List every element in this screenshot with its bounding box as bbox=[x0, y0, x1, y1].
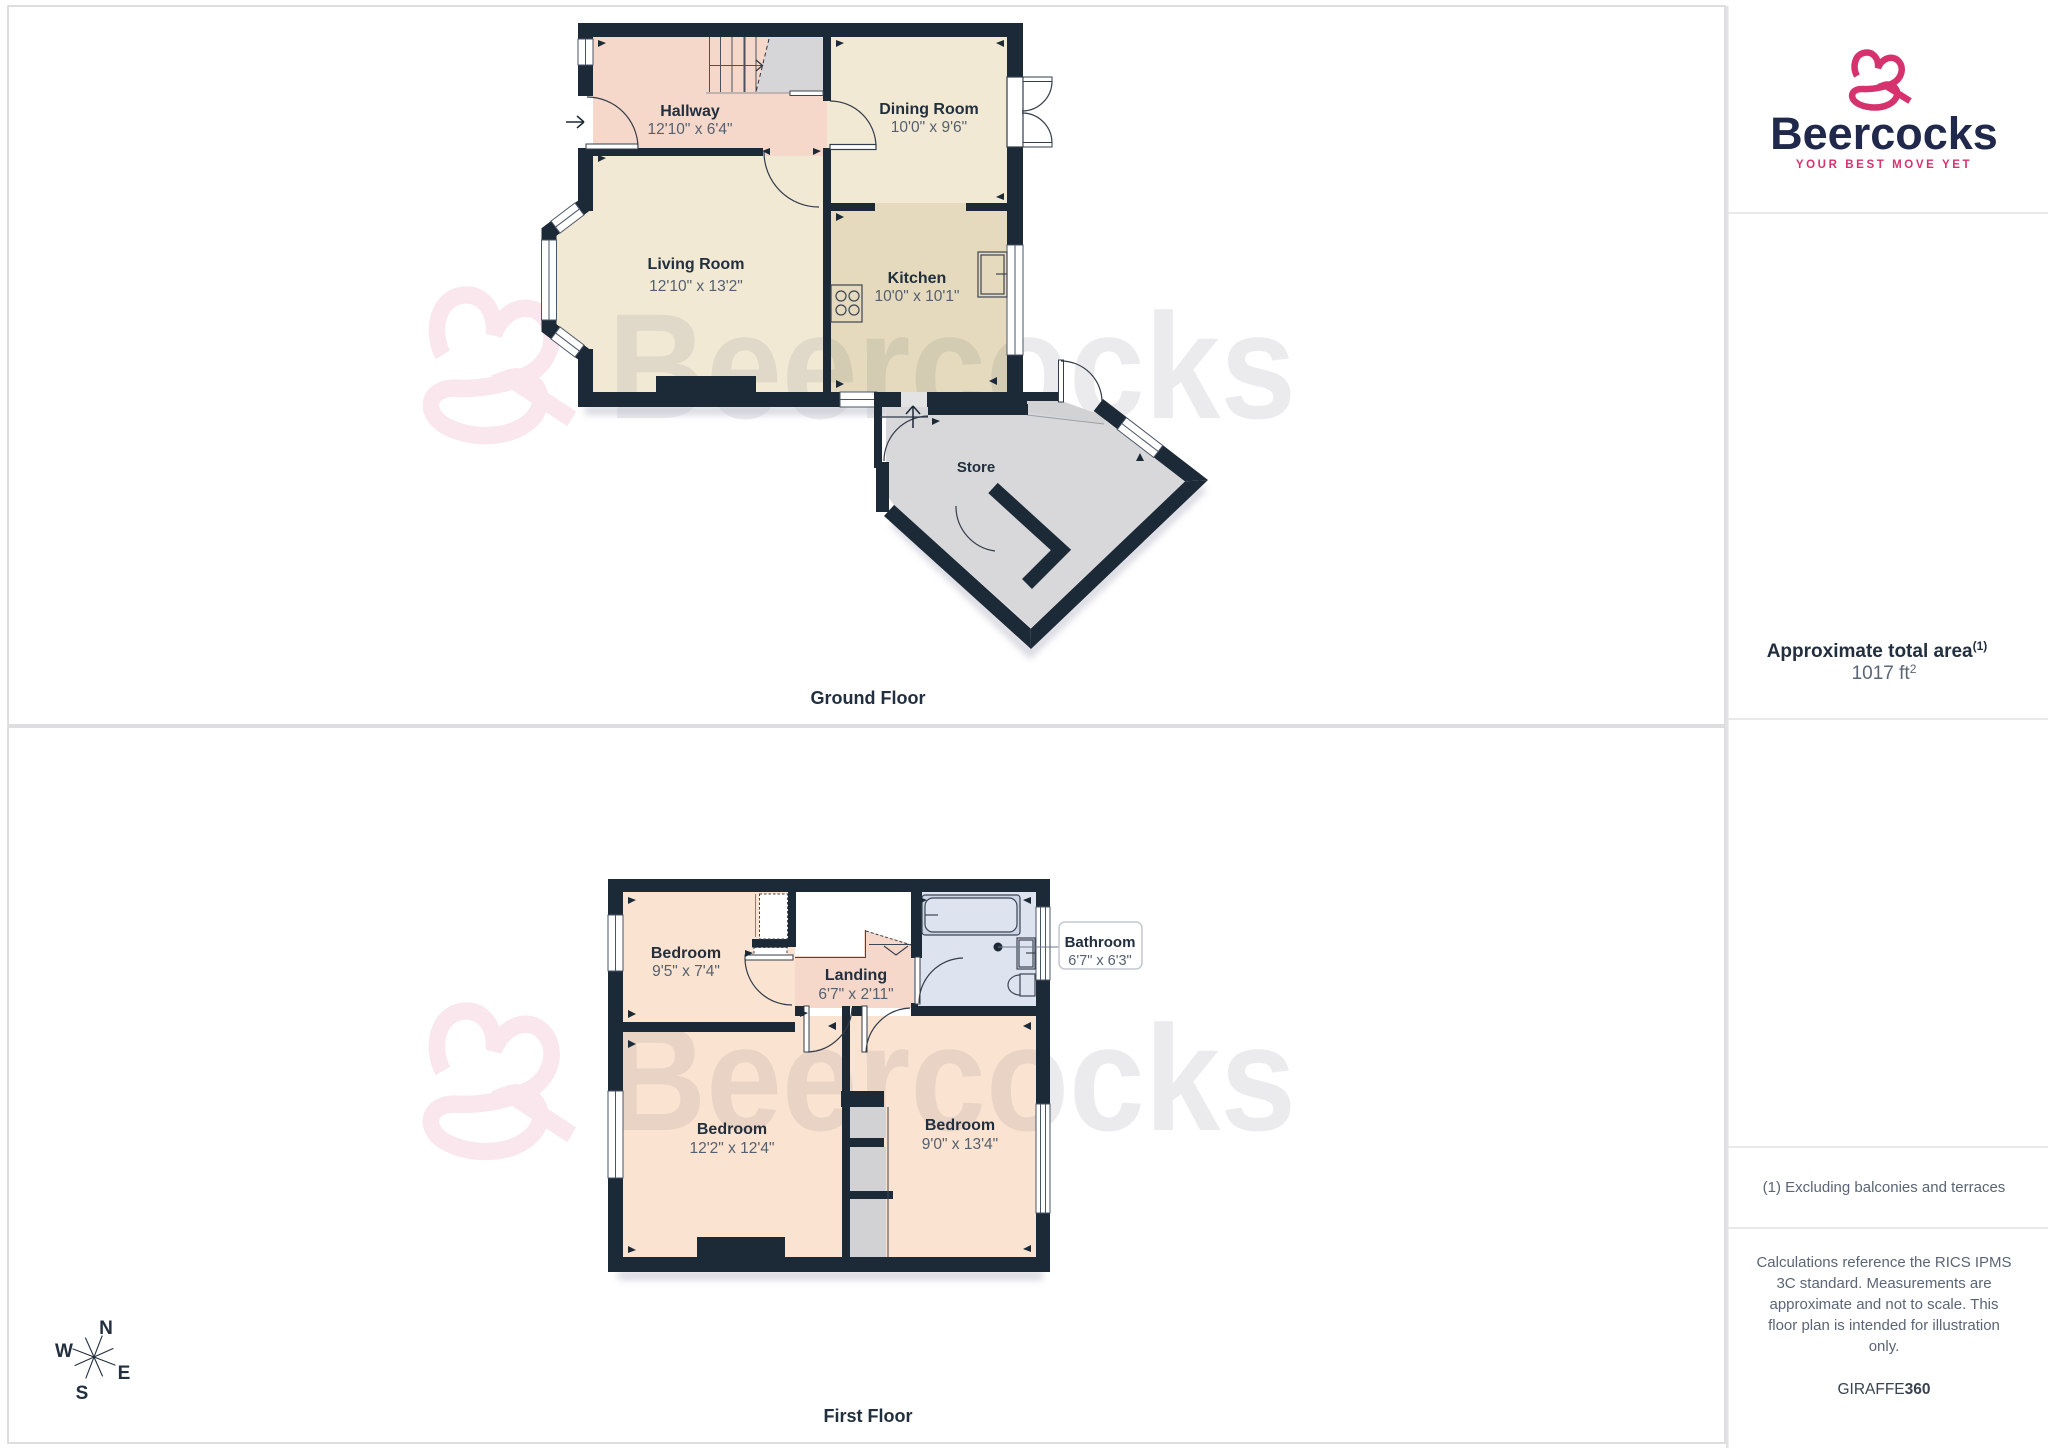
svg-text:S: S bbox=[76, 1383, 89, 1404]
svg-text:12'10" x 13'2": 12'10" x 13'2" bbox=[649, 278, 743, 295]
svg-text:Bedroom: Bedroom bbox=[925, 1117, 995, 1134]
svg-text:N: N bbox=[99, 1318, 113, 1339]
svg-text:Bathroom: Bathroom bbox=[1065, 934, 1136, 951]
svg-text:Kitchen: Kitchen bbox=[888, 270, 947, 287]
svg-text:12'2" x 12'4": 12'2" x 12'4" bbox=[689, 1140, 774, 1157]
svg-text:9'5" x 7'4": 9'5" x 7'4" bbox=[652, 963, 720, 980]
svg-text:W: W bbox=[55, 1341, 73, 1362]
svg-text:Beercocks: Beercocks bbox=[1770, 108, 1998, 159]
svg-text:GIRAFFE360: GIRAFFE360 bbox=[1837, 1381, 1930, 1398]
svg-text:(1) Excluding balconies and te: (1) Excluding balconies and terraces bbox=[1763, 1179, 2006, 1196]
svg-text:Landing: Landing bbox=[825, 967, 887, 984]
svg-text:approximate and not to scale.: approximate and not to scale. This bbox=[1769, 1296, 1998, 1313]
svg-text:First Floor: First Floor bbox=[824, 1406, 913, 1426]
svg-text:Hallway: Hallway bbox=[660, 103, 720, 120]
svg-text:10'0" x 9'6": 10'0" x 9'6" bbox=[891, 119, 967, 136]
svg-text:12'10" x 6'4": 12'10" x 6'4" bbox=[647, 121, 732, 138]
svg-text:9'0" x 13'4": 9'0" x 13'4" bbox=[922, 1136, 998, 1153]
svg-text:floor plan is intended for ill: floor plan is intended for illustration bbox=[1768, 1317, 2000, 1334]
svg-text:Approximate total area(1): Approximate total area(1) bbox=[1767, 639, 1988, 662]
svg-text:Store: Store bbox=[957, 459, 995, 476]
svg-text:10'0" x 10'1": 10'0" x 10'1" bbox=[874, 288, 959, 305]
svg-text:Living Room: Living Room bbox=[648, 256, 745, 273]
svg-text:Bedroom: Bedroom bbox=[697, 1121, 767, 1138]
svg-text:6'7" x 6'3": 6'7" x 6'3" bbox=[1068, 953, 1131, 969]
svg-text:6'7" x 2'11": 6'7" x 2'11" bbox=[818, 986, 893, 1003]
svg-text:3C standard. Measurements are: 3C standard. Measurements are bbox=[1776, 1275, 1991, 1292]
svg-text:Bedroom: Bedroom bbox=[651, 945, 721, 962]
svg-text:Calculations reference the RIC: Calculations reference the RICS IPMS bbox=[1756, 1254, 2011, 1271]
svg-text:Dining Room: Dining Room bbox=[879, 101, 979, 118]
svg-text:1017 ft2: 1017 ft2 bbox=[1852, 662, 1917, 684]
svg-text:only.: only. bbox=[1869, 1338, 1900, 1355]
svg-text:Ground Floor: Ground Floor bbox=[811, 688, 926, 708]
svg-text:E: E bbox=[118, 1363, 131, 1384]
svg-text:YOUR BEST MOVE YET: YOUR BEST MOVE YET bbox=[1796, 159, 1972, 171]
